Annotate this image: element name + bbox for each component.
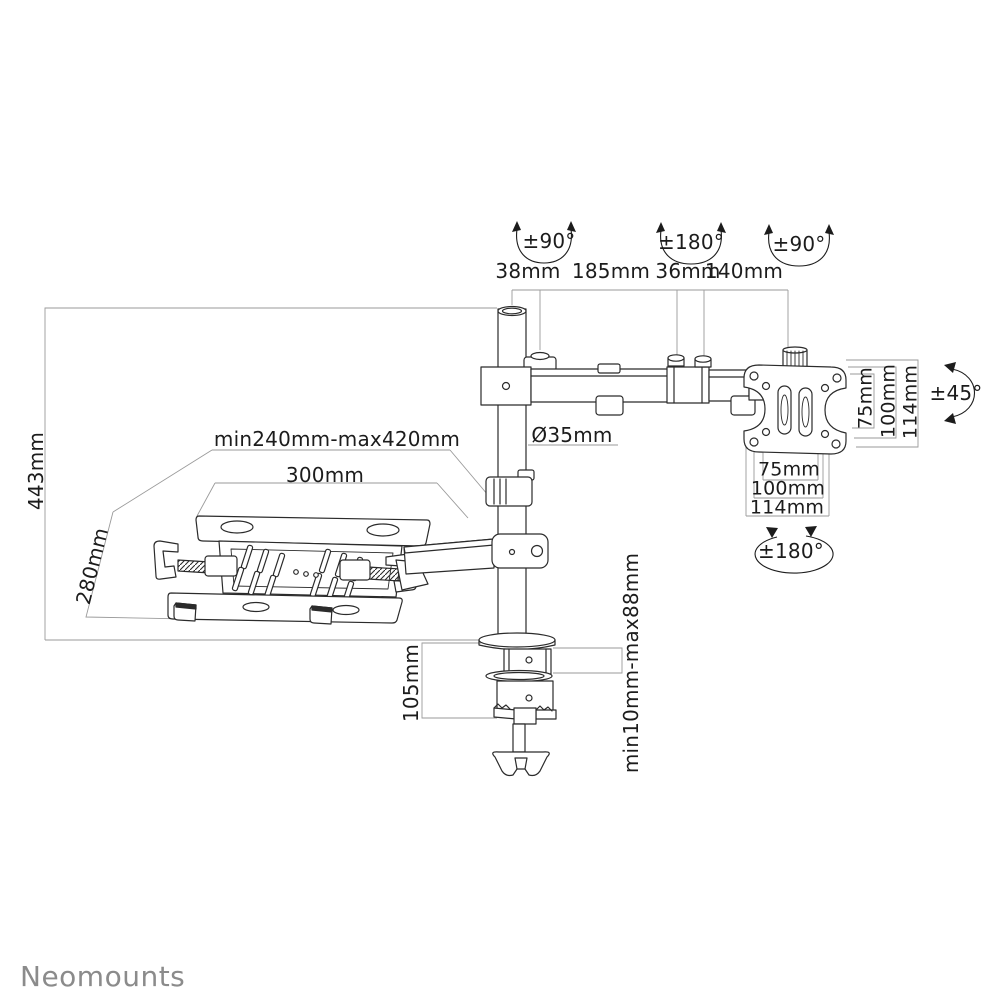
dimension-140mm: 140mm [705, 261, 783, 281]
dimension-pole-diameter: Ø35mm [531, 425, 612, 445]
rotation-label-vesa: ±90° [772, 234, 825, 254]
vesa-height-114: 114mm [902, 365, 921, 439]
dimension-185mm: 185mm [572, 261, 650, 281]
product-dimension-diagram: ±90° ±180° ±90° 38mm 185mm 36mm 140mm 44… [0, 0, 1004, 1004]
vesa-rotation-label: ±180° [758, 541, 824, 561]
rotation-label-elbow: ±180° [658, 232, 724, 252]
laptop-tray [154, 516, 430, 624]
brand-logo: Neomounts [20, 960, 185, 993]
dimension-tray-range: min240mm-max420mm [214, 429, 460, 449]
vesa-knob [783, 347, 807, 368]
dimension-pole-height: 443mm [26, 432, 46, 510]
technical-drawing [0, 0, 1004, 1004]
vesa-width-114: 114mm [750, 499, 824, 518]
vesa-tilt-label: ±45° [929, 383, 982, 403]
vesa-height-75: 75mm [857, 367, 876, 429]
desk-clamp [479, 633, 556, 776]
rotation-label-pole: ±90° [522, 231, 575, 251]
vesa-height-100: 100mm [880, 364, 899, 438]
dimension-38mm: 38mm [495, 261, 560, 281]
dimension-desk-thickness: min10mm-max88mm [621, 553, 641, 773]
dimension-tray-width: 300mm [286, 465, 364, 485]
dimension-clamp-height: 105mm [401, 644, 421, 722]
